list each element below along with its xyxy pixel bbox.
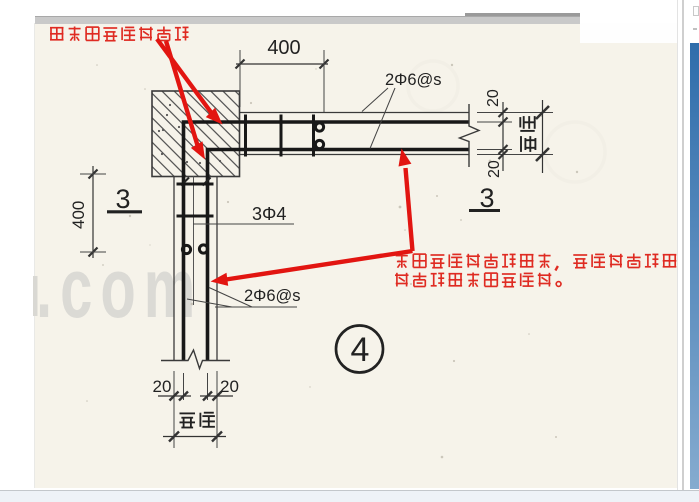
svg-text:400: 400 <box>267 37 300 59</box>
svg-text:400: 400 <box>69 201 88 229</box>
svg-text:2Φ6@s: 2Φ6@s <box>385 71 442 89</box>
svg-text:20: 20 <box>220 377 239 396</box>
svg-text:20: 20 <box>486 160 503 178</box>
svg-text:3Φ4: 3Φ4 <box>252 204 286 224</box>
svg-text:3: 3 <box>115 184 130 214</box>
svg-text:2Φ6@s: 2Φ6@s <box>244 287 301 305</box>
svg-text:20: 20 <box>153 377 172 396</box>
svg-text:.com: .com <box>36 242 203 335</box>
svg-text:4: 4 <box>351 331 370 369</box>
svg-text:3: 3 <box>479 183 494 213</box>
svg-text:20: 20 <box>485 89 502 107</box>
